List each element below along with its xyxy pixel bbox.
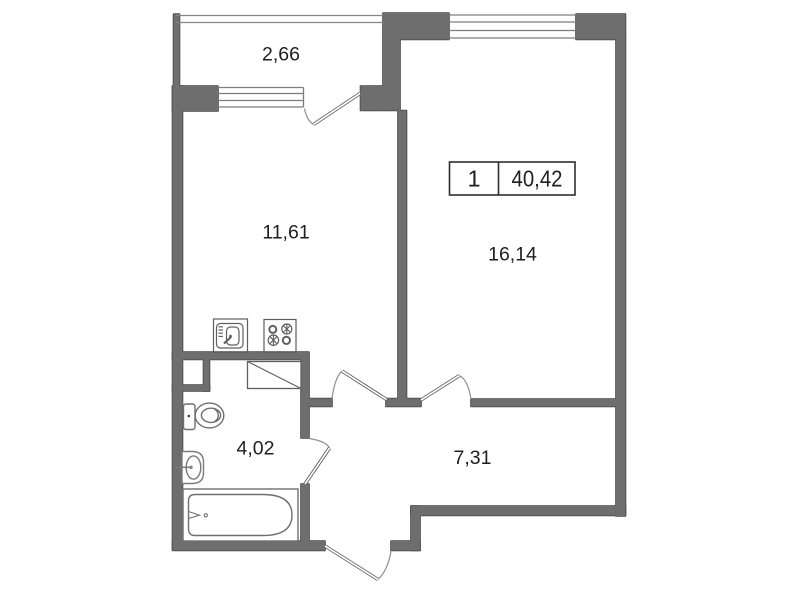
svg-text:1: 1 bbox=[467, 166, 480, 192]
svg-text:16,14: 16,14 bbox=[488, 244, 537, 266]
svg-text:11,61: 11,61 bbox=[262, 222, 309, 244]
svg-text:2,66: 2,66 bbox=[262, 44, 300, 66]
svg-text:40,42: 40,42 bbox=[512, 166, 563, 192]
svg-text:4,02: 4,02 bbox=[237, 438, 275, 460]
svg-text:7,31: 7,31 bbox=[454, 447, 492, 469]
